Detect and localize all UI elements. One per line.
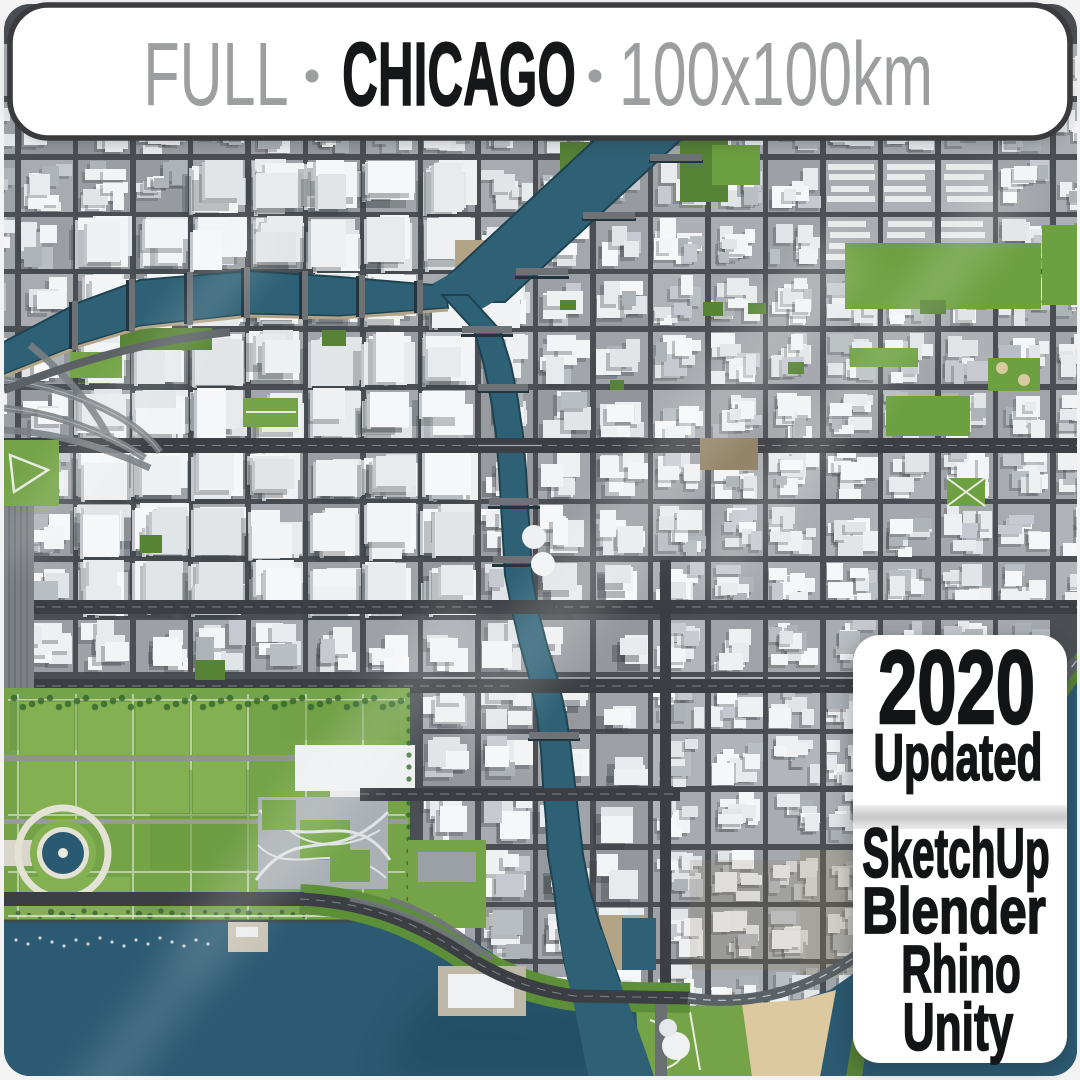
svg-text:Unity: Unity xyxy=(903,991,1014,1065)
svg-text:Updated: Updated xyxy=(874,720,1043,794)
svg-text:CHICAGO: CHICAGO xyxy=(342,24,576,124)
svg-text:FULL: FULL xyxy=(143,25,288,125)
svg-text:100x100km: 100x100km xyxy=(619,24,933,125)
